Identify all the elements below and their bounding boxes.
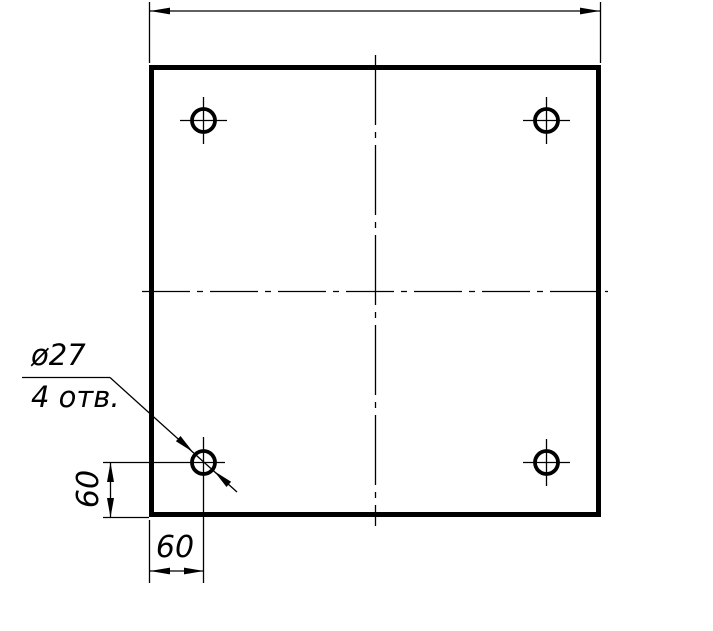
leader-callout: ø27 4 отв. (22, 338, 237, 492)
technical-drawing: ø27 4 отв. 60 60 (0, 0, 713, 631)
hole-top-left (180, 97, 227, 144)
hole-count-label: 4 отв. (31, 380, 120, 414)
arrowhead-right-icon (184, 568, 204, 575)
arrowhead-up-icon (107, 463, 114, 483)
arrowhead-down-icon (107, 498, 114, 518)
leader-arrowhead-upper-icon (176, 436, 193, 452)
dim-text-60-vertical: 60 (71, 470, 106, 508)
leader-arrowhead-lower-icon (214, 471, 231, 487)
hole-top-right (523, 97, 570, 144)
top-width-dimension (150, 2, 601, 63)
vertical-60-dimension: 60 (71, 463, 149, 518)
technical-drawing-canvas: ø27 4 отв. 60 60 (0, 0, 713, 631)
horizontal-60-dimension: 60 (150, 520, 205, 583)
hole-bottom-right (523, 439, 570, 486)
arrowhead-right-icon (580, 8, 600, 15)
arrowhead-left-icon (150, 8, 170, 15)
diameter-label: ø27 (30, 338, 86, 372)
dim-text-60-horizontal: 60 (156, 530, 194, 565)
arrowhead-left-icon (150, 568, 170, 575)
